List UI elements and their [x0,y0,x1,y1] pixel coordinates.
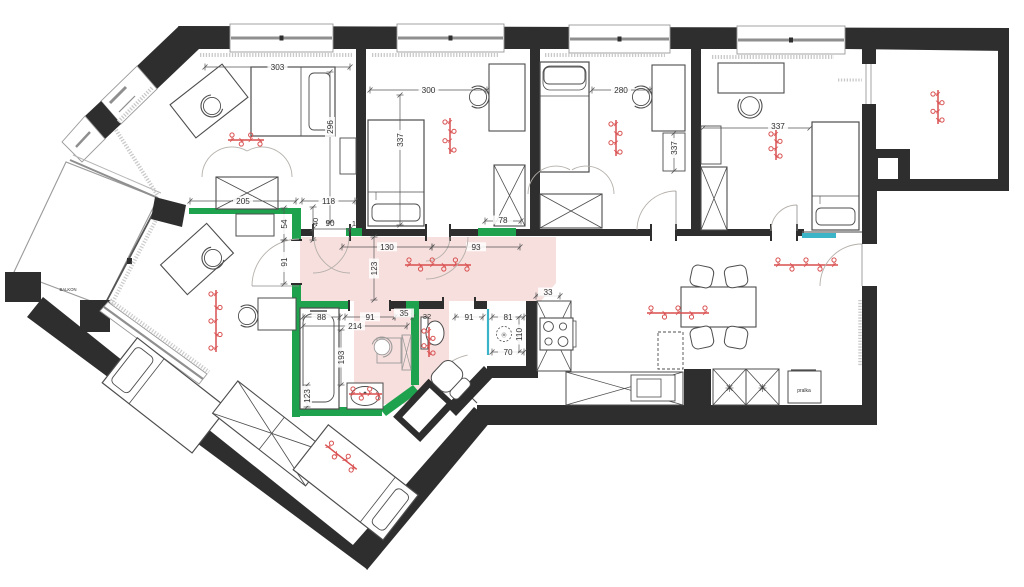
svg-text:193: 193 [337,350,346,364]
svg-text:303: 303 [271,63,285,72]
svg-text:110: 110 [515,328,524,341]
svg-text:✳: ✳ [758,383,767,395]
svg-text:337: 337 [396,133,405,147]
svg-text:130: 130 [380,243,394,252]
svg-text:BALKON: BALKON [60,287,77,292]
svg-text:32: 32 [423,312,431,321]
svg-text:35: 35 [399,309,409,318]
svg-text:123: 123 [303,389,312,403]
svg-text:205: 205 [236,197,250,206]
svg-text:Ⓜ: Ⓜ [501,332,506,339]
svg-text:✳: ✳ [725,383,734,395]
svg-text:118: 118 [322,197,335,206]
svg-text:81: 81 [503,313,513,322]
svg-text:93: 93 [471,243,481,252]
svg-text:123: 123 [370,261,379,275]
svg-text:91: 91 [365,313,375,322]
svg-text:300: 300 [422,86,436,95]
svg-text:280: 280 [614,86,628,95]
svg-text:pralka: pralka [797,388,811,394]
svg-text:88: 88 [317,313,327,322]
svg-text:19: 19 [352,219,360,228]
svg-text:78: 78 [498,216,508,225]
svg-text:214: 214 [348,322,362,331]
svg-text:91: 91 [280,257,289,267]
svg-text:337: 337 [771,122,785,131]
svg-text:54: 54 [280,219,289,229]
svg-text:70: 70 [503,348,513,357]
svg-text:40: 40 [311,218,320,226]
svg-text:296: 296 [326,120,335,134]
svg-text:91: 91 [464,313,474,322]
svg-text:90: 90 [325,219,335,228]
svg-text:337: 337 [670,141,679,155]
svg-text:33: 33 [543,288,553,297]
